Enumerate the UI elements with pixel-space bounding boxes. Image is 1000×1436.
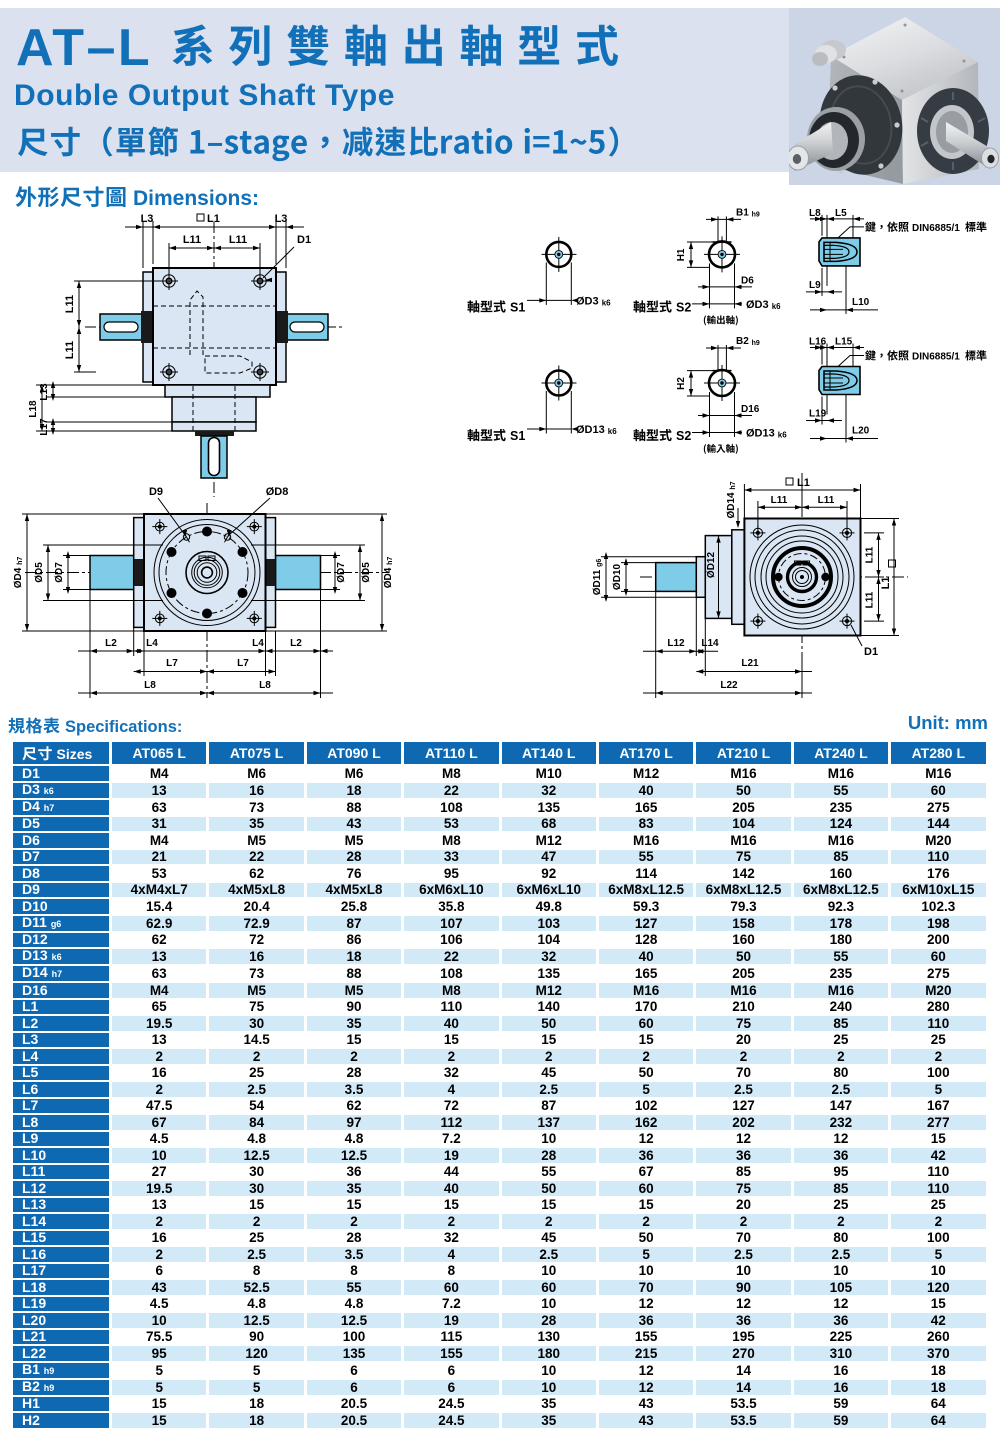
svg-text:L18: L18 bbox=[28, 400, 39, 418]
svg-text:ØD12: ØD12 bbox=[706, 552, 717, 579]
svg-text:ØD3 k6: ØD3 k6 bbox=[746, 299, 781, 311]
svg-text:AT–L: AT–L bbox=[16, 19, 152, 77]
svg-text:L17: L17 bbox=[39, 418, 50, 436]
svg-text:ØD14 h7: ØD14 h7 bbox=[726, 481, 737, 518]
svg-text:ØD5: ØD5 bbox=[361, 562, 372, 583]
svg-text:H1: H1 bbox=[676, 248, 687, 261]
svg-text:H2: H2 bbox=[676, 377, 687, 390]
svg-text:D9: D9 bbox=[149, 486, 163, 498]
svg-text:L12: L12 bbox=[667, 638, 685, 649]
svg-text:L8: L8 bbox=[259, 680, 271, 691]
svg-text:ØD4 h7: ØD4 h7 bbox=[383, 557, 394, 589]
svg-text:S1: S1 bbox=[510, 300, 525, 314]
svg-text:L22: L22 bbox=[720, 680, 738, 691]
svg-text:S1: S1 bbox=[510, 429, 525, 443]
svg-text:D1: D1 bbox=[297, 234, 311, 246]
svg-text:L16: L16 bbox=[809, 337, 827, 348]
svg-text:L1: L1 bbox=[207, 213, 220, 225]
svg-text:L3: L3 bbox=[275, 213, 288, 225]
svg-text:L11: L11 bbox=[865, 546, 876, 563]
svg-text:B1 h9: B1 h9 bbox=[736, 207, 760, 218]
svg-text:L2: L2 bbox=[290, 638, 302, 649]
svg-text:ØD7: ØD7 bbox=[336, 562, 347, 583]
svg-text:L4: L4 bbox=[252, 638, 264, 649]
svg-text:L11: L11 bbox=[771, 495, 788, 506]
svg-text:L9: L9 bbox=[809, 280, 821, 291]
svg-text:D16: D16 bbox=[741, 404, 760, 415]
svg-text:L20: L20 bbox=[852, 426, 870, 437]
svg-text:L11: L11 bbox=[865, 591, 876, 608]
svg-text:ØD13 k6: ØD13 k6 bbox=[746, 428, 787, 440]
svg-text:L11: L11 bbox=[64, 295, 76, 313]
svg-text:L1: L1 bbox=[880, 577, 892, 590]
svg-text:L11: L11 bbox=[818, 495, 835, 506]
svg-text:L11: L11 bbox=[183, 234, 201, 246]
svg-text:Specifications:: Specifications: bbox=[65, 718, 182, 736]
svg-text:ØD10: ØD10 bbox=[612, 564, 623, 591]
svg-text:ØD11 g6: ØD11 g6 bbox=[592, 559, 603, 596]
svg-text:L5: L5 bbox=[835, 208, 847, 219]
svg-text:DIN6885/1: DIN6885/1 bbox=[912, 223, 960, 234]
svg-text:ØD3 k6: ØD3 k6 bbox=[576, 295, 611, 307]
svg-text:ØD8: ØD8 bbox=[266, 486, 289, 498]
svg-text:L11: L11 bbox=[64, 341, 76, 359]
svg-text:L3: L3 bbox=[141, 213, 154, 225]
svg-text:L10: L10 bbox=[852, 297, 870, 308]
svg-text:D1: D1 bbox=[864, 646, 878, 658]
svg-text:L1: L1 bbox=[797, 477, 810, 489]
svg-text:S2: S2 bbox=[676, 429, 691, 443]
svg-text:L8: L8 bbox=[144, 680, 156, 691]
svg-text:L14: L14 bbox=[701, 638, 719, 649]
svg-text:S2: S2 bbox=[676, 300, 691, 314]
svg-text:L21: L21 bbox=[741, 658, 759, 669]
svg-text:L11: L11 bbox=[229, 234, 247, 246]
svg-text:ØD5: ØD5 bbox=[34, 562, 45, 583]
svg-text:L7: L7 bbox=[166, 658, 178, 669]
svg-text:L4: L4 bbox=[146, 638, 158, 649]
svg-text:L7: L7 bbox=[237, 658, 249, 669]
svg-text:B2 h9: B2 h9 bbox=[736, 336, 760, 347]
svg-text:ØD4 h7: ØD4 h7 bbox=[13, 557, 24, 589]
svg-text:L8: L8 bbox=[809, 208, 821, 219]
svg-text:D6: D6 bbox=[741, 275, 754, 286]
svg-text:L15: L15 bbox=[835, 337, 853, 348]
svg-text:DIN6885/1: DIN6885/1 bbox=[912, 352, 960, 363]
svg-text:Sizes: Sizes bbox=[57, 746, 93, 762]
svg-text:ØD13 k6: ØD13 k6 bbox=[576, 424, 617, 436]
svg-text:L19: L19 bbox=[809, 409, 827, 420]
svg-text:ØD7: ØD7 bbox=[54, 562, 65, 583]
svg-text:L2: L2 bbox=[105, 638, 117, 649]
